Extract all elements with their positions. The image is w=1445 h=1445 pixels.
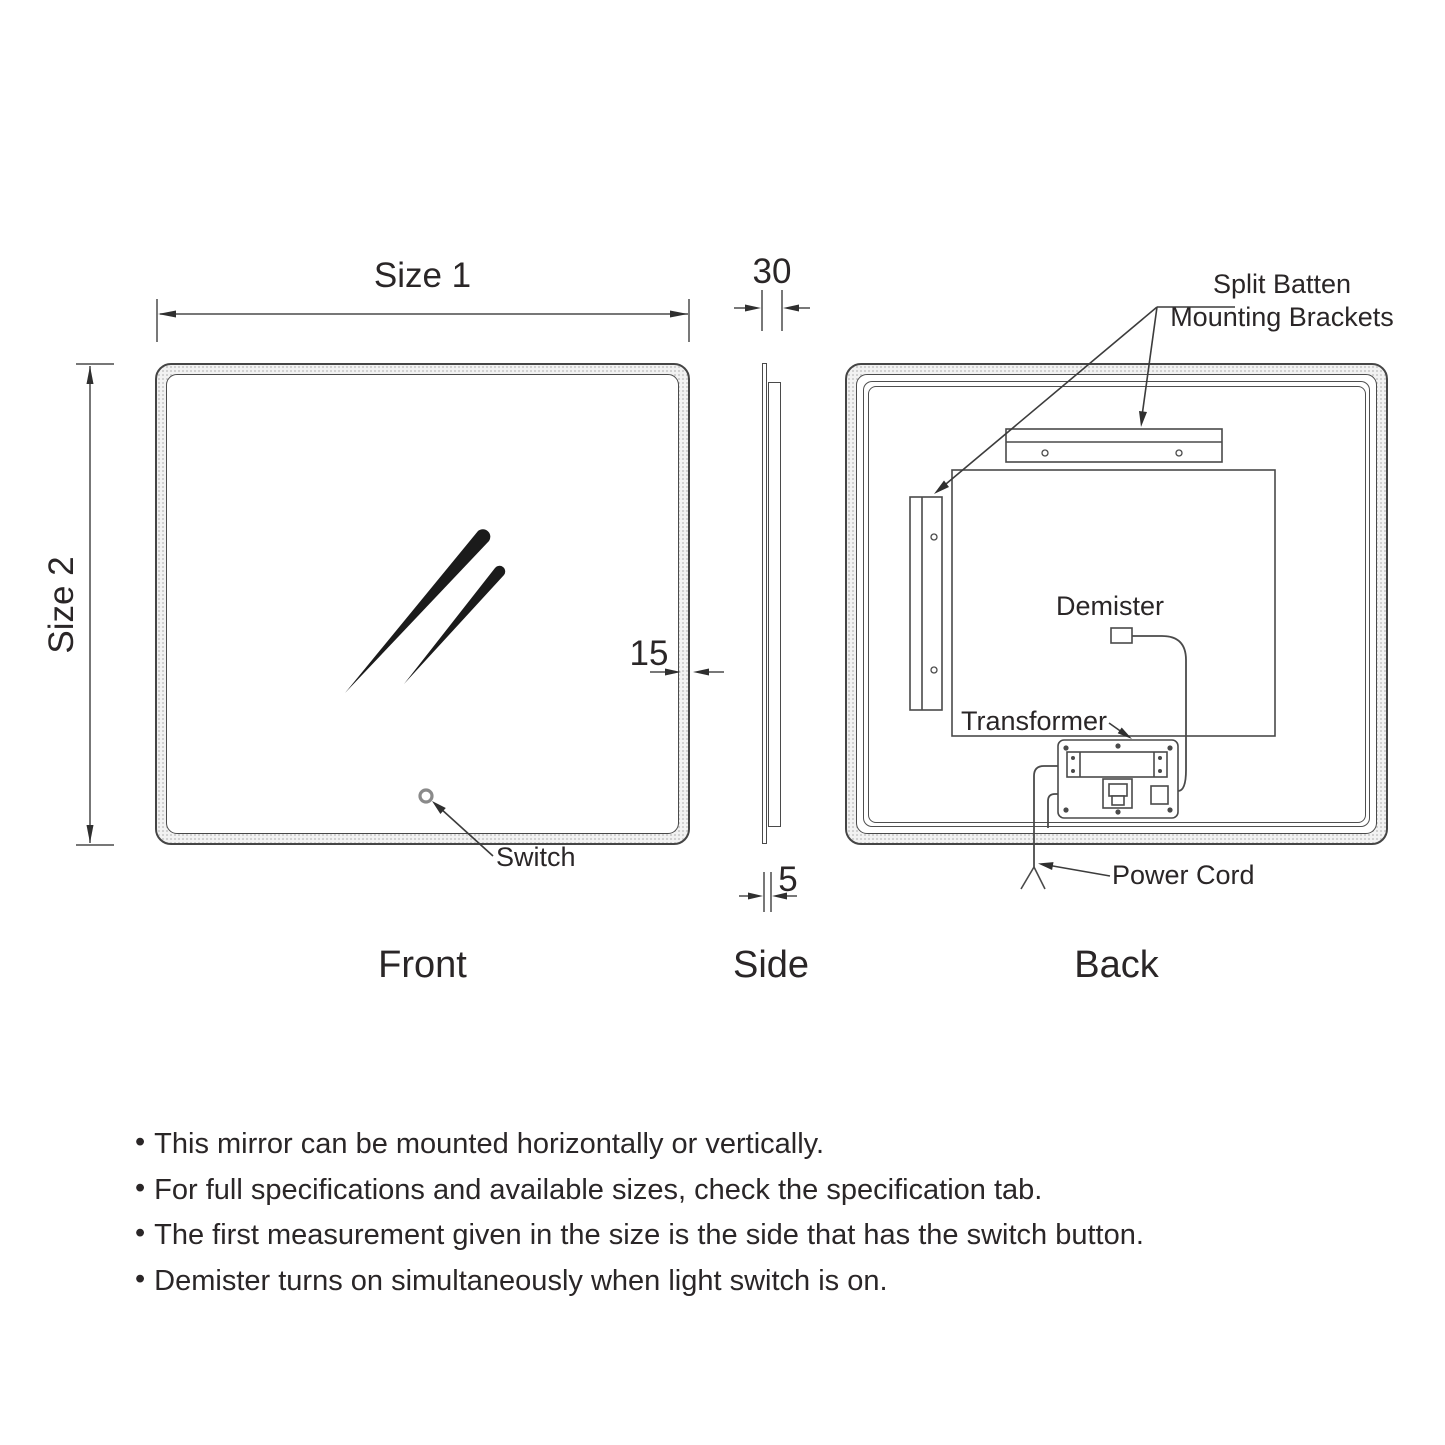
- transformer-terminal-inner: [1109, 784, 1127, 796]
- size1-dimension-label: Size 1: [155, 256, 690, 296]
- note-item: •For full specifications and available s…: [135, 1168, 1144, 1214]
- split-batten-leader-top: [1142, 307, 1157, 416]
- transformer-core: [1067, 752, 1167, 777]
- bracket-screw-hole: [931, 534, 937, 540]
- transformer-side-module: [1151, 786, 1168, 804]
- power-cord-label: Power Cord: [1112, 860, 1255, 891]
- note-bullet: •: [135, 1120, 145, 1166]
- power-cord-strain-fork: [1021, 867, 1045, 889]
- power-cord-wire: [1034, 766, 1058, 867]
- note-bullet: •: [135, 1211, 145, 1257]
- note-item: •This mirror can be mounted horizontally…: [135, 1122, 1144, 1168]
- transformer-terminal-tab: [1112, 796, 1124, 805]
- bracket-screw-hole: [931, 667, 937, 673]
- left-mounting-bracket: [910, 497, 942, 710]
- split-batten-label-line2: Mounting Brackets: [1170, 302, 1394, 332]
- frame-arrowhead-right: [693, 669, 709, 676]
- size1-arrowhead-left: [158, 311, 176, 318]
- size2-arrowhead-bottom: [87, 825, 94, 843]
- frame-width-dimension-label: 15: [620, 634, 678, 674]
- transformer-screw: [1167, 745, 1172, 750]
- size2-dimension-label: Size 2: [42, 495, 82, 715]
- transformer-screw: [1167, 807, 1172, 812]
- switch-label: Switch: [496, 842, 576, 873]
- depth-arrowhead-right: [783, 305, 799, 312]
- bracket-screw-hole: [1042, 450, 1048, 456]
- glass-arrowhead-left: [748, 893, 763, 900]
- note-bullet: •: [135, 1257, 145, 1303]
- transformer-screw: [1115, 809, 1120, 814]
- transformer-lead-wire: [1048, 794, 1058, 828]
- transformer-screw: [1158, 769, 1162, 773]
- transformer-screw: [1063, 807, 1068, 812]
- notes-list: •This mirror can be mounted horizontally…: [135, 1122, 1144, 1304]
- note-item: •The first measurement given in the size…: [135, 1213, 1144, 1259]
- mirror-shine-mark-small: [404, 566, 505, 684]
- split-batten-label: Split Batten Mounting Brackets: [1157, 268, 1407, 334]
- note-text: This mirror can be mounted horizontally …: [154, 1128, 824, 1160]
- note-bullet: •: [135, 1166, 145, 1212]
- transformer-screw: [1158, 756, 1162, 760]
- size2-arrowhead-top: [87, 366, 94, 384]
- bracket-screw-hole: [1176, 450, 1182, 456]
- transformer-screw: [1071, 769, 1075, 773]
- top-mounting-bracket: [1006, 429, 1222, 462]
- power-cord-arrowhead: [1038, 862, 1054, 870]
- note-text: Demister turns on simultaneously when li…: [154, 1265, 887, 1297]
- depth-arrowhead-left: [745, 305, 761, 312]
- transformer-screw: [1115, 743, 1120, 748]
- split-batten-arrowhead-top: [1139, 411, 1147, 427]
- note-text: The first measurement given in the size …: [154, 1219, 1144, 1251]
- back-view-label: Back: [845, 944, 1388, 987]
- demister-pad: [1111, 628, 1132, 643]
- transformer-label: Transformer: [961, 706, 1107, 737]
- power-cord-leader-line: [1050, 866, 1110, 877]
- side-view-label: Side: [681, 944, 861, 987]
- depth-dimension-label: 30: [742, 252, 802, 292]
- transformer-screw: [1071, 756, 1075, 760]
- split-batten-label-line1: Split Batten: [1213, 269, 1351, 299]
- note-item: •Demister turns on simultaneously when l…: [135, 1259, 1144, 1305]
- mirror-spec-diagram: Size 1 Size 2 30 15 5 Split Batten Mount…: [0, 0, 1445, 1445]
- note-text: For full specifications and available si…: [154, 1174, 1042, 1206]
- size1-arrowhead-right: [670, 311, 688, 318]
- transformer-screw: [1063, 745, 1068, 750]
- demister-label: Demister: [1056, 591, 1164, 622]
- glass-thickness-dimension-label: 5: [772, 860, 804, 900]
- front-view-label: Front: [155, 944, 690, 987]
- switch-leader-line: [440, 808, 493, 856]
- switch-button: [420, 790, 432, 802]
